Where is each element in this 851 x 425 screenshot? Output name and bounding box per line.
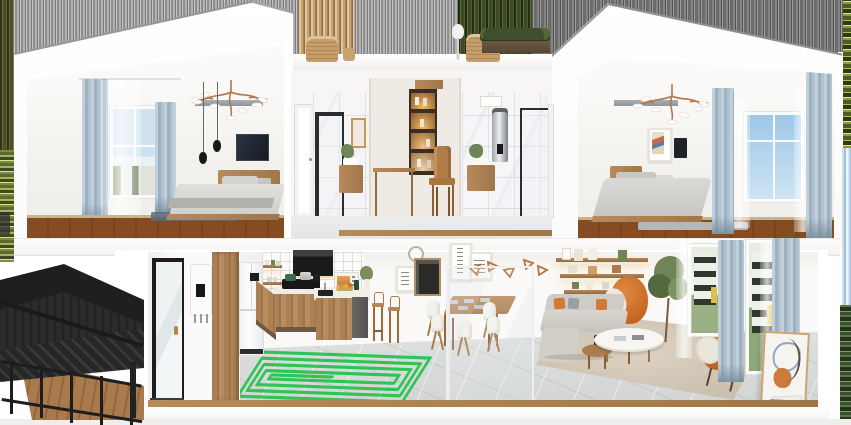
suite-floor [291, 216, 552, 240]
bar-stool-2 [386, 296, 402, 344]
chair2-shell [431, 314, 444, 333]
curtain-right-2-hem [806, 218, 832, 238]
coffee-table-items [614, 336, 626, 341]
terrace-lamp-stem [457, 38, 459, 60]
curtain-left-2-hem [712, 216, 734, 234]
shelf-dishes [265, 260, 269, 265]
armchair-legs [706, 368, 712, 386]
door-handle [174, 326, 178, 335]
chair-back [434, 146, 451, 180]
vanity-left-basin [343, 158, 358, 165]
stool1-footrest [373, 330, 383, 332]
shelf-decor-2 [568, 265, 577, 273]
shelf-decor-3 [572, 282, 579, 289]
fridge-grille [240, 349, 263, 354]
left-bedroom [27, 46, 284, 240]
green-bottle [354, 280, 359, 290]
chair2-leg2 [438, 331, 444, 350]
vanity-right-cabinet [467, 165, 495, 191]
living-curtain-mid-hem [718, 364, 744, 382]
sofa-pillow-orange-1 [553, 297, 565, 309]
vanity-right-basin [473, 158, 489, 165]
niche-items [415, 97, 419, 105]
railing-corner-post [130, 362, 136, 418]
middle-suite [291, 70, 552, 240]
pendant-cord-2 [217, 82, 218, 142]
lit-display-niche [409, 89, 437, 175]
entry-glass-door [152, 258, 184, 404]
coffee-table-legs [606, 350, 608, 362]
living-curtain-mid [718, 240, 744, 382]
kettle-black [313, 274, 320, 281]
stool2-legs [389, 311, 391, 343]
bed-blanket [168, 198, 274, 208]
niche-shelf-3 [411, 133, 435, 149]
pendant-shade-2 [213, 140, 221, 152]
terrace-stool [343, 48, 355, 61]
pot-steel [300, 272, 311, 280]
pot-green [285, 274, 296, 281]
terrace-wicker-chair-left [306, 36, 338, 62]
art-dark-arc [769, 337, 801, 383]
poster-text-lines [401, 272, 409, 285]
niche-shelf-2 [411, 113, 435, 129]
bed-frame [166, 214, 279, 220]
stair-structure [0, 264, 144, 422]
chair2-leg [431, 331, 437, 350]
shelf-decor-1 [562, 248, 571, 260]
right-blue-smear [842, 148, 851, 305]
desk-top [373, 168, 415, 172]
vanity-right-plant [469, 144, 483, 158]
range-hood [293, 250, 333, 276]
window2-mullion-h [747, 140, 801, 142]
fruit [339, 283, 343, 287]
pendant-cord-1 [203, 82, 204, 154]
chair-seat [429, 178, 455, 185]
right-green-smear [840, 305, 851, 425]
island-sink [318, 290, 333, 296]
pendant-shade-1 [199, 152, 207, 164]
cutaway-render [0, 0, 851, 425]
door-left [294, 104, 314, 218]
desk-legs [375, 172, 377, 216]
tall-wood-cabinet [212, 252, 239, 402]
curtain-right-2 [806, 72, 832, 238]
living-sheer-1 [676, 242, 692, 358]
bedroom-floor [27, 218, 284, 240]
olive-edge-smear [0, 0, 13, 152]
gold-art-frame [351, 118, 366, 148]
niche-header [415, 80, 443, 89]
window2-mullion-v [773, 115, 775, 199]
stool1-legs [373, 307, 375, 341]
terrace-lamp [452, 24, 464, 39]
door-right [548, 104, 554, 218]
boiler-display [196, 284, 205, 297]
branch-chandelier-2 [626, 84, 718, 142]
dining-chair-2 [430, 314, 446, 354]
branch-chandelier [185, 80, 277, 138]
suite-floor-trim [339, 230, 552, 236]
right-bedroom [578, 58, 834, 240]
vanity-left-cabinet [339, 165, 363, 193]
front-floor-trim [148, 400, 818, 407]
ceiling-vent [480, 96, 502, 107]
fridge-seam-v [251, 263, 252, 309]
left-foliage-smear [0, 150, 14, 262]
side-table-legs [588, 355, 590, 369]
sheer-curtain [101, 80, 141, 230]
poster-frame [648, 128, 672, 162]
wall-tv [236, 134, 269, 161]
right-foliage-smear [843, 0, 851, 148]
water-heater-display [497, 144, 503, 154]
left-dark-smudge [0, 212, 10, 234]
sofa-pillow-gray [568, 298, 580, 310]
island-faucet [324, 283, 326, 290]
door-left-knob [309, 158, 312, 161]
underfloor-heating-coil [225, 348, 436, 406]
island-side-dark [352, 297, 368, 338]
poster-small-text [396, 266, 416, 292]
boiler-pipes [194, 314, 196, 323]
bed2-duvet [592, 178, 712, 220]
kitchen-vase [364, 279, 370, 288]
win1-accent [711, 287, 717, 303]
kitchen-shelf-1 [263, 265, 282, 268]
coffee-table-top [594, 328, 664, 352]
kitchen-plant [360, 266, 373, 280]
glass-partition [446, 266, 534, 410]
railing-posts [10, 362, 13, 414]
terrace-planter-box [482, 41, 550, 53]
poster-art [652, 132, 664, 154]
bar-stool-1 [370, 292, 386, 342]
coffee-table [594, 328, 666, 362]
sofa-pillow-orange-2 [596, 299, 607, 310]
island-front [316, 298, 352, 340]
chair-legs [432, 185, 434, 216]
poster-dark-photo [414, 258, 441, 296]
dark-wall-panel [674, 138, 687, 158]
vanity-left-plant [341, 144, 354, 158]
curtain-left-2 [712, 88, 734, 234]
bed2-frame [591, 216, 703, 222]
fridge-display [250, 273, 259, 281]
kitchen-shelf-2 [263, 282, 282, 285]
